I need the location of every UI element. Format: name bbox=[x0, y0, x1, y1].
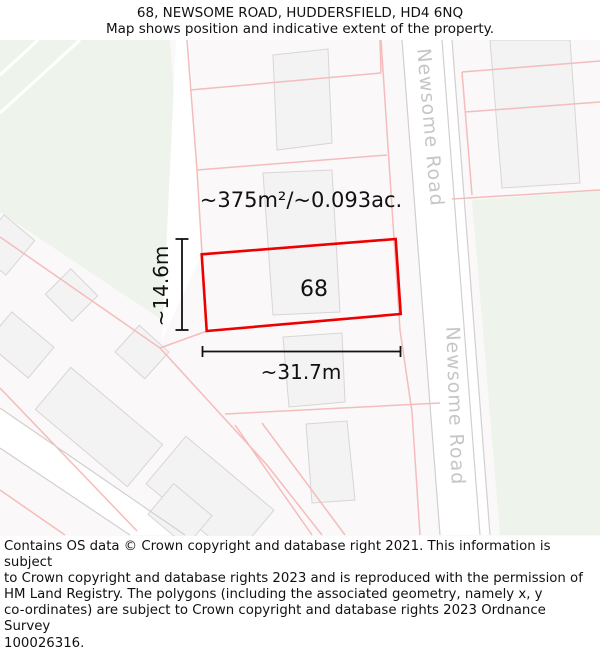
page-title: 68, NEWSOME ROAD, HUDDERSFIELD, HD4 6NQ bbox=[0, 0, 600, 21]
area-label: ~375m²/~0.093ac. bbox=[200, 188, 402, 212]
building bbox=[306, 421, 355, 503]
plot-number-label: 68 bbox=[300, 277, 328, 302]
height-dimension-label: ~14.6m bbox=[149, 246, 173, 327]
copyright-notice: Contains OS data © Crown copyright and d… bbox=[0, 536, 600, 652]
page-subtitle: Map shows position and indicative extent… bbox=[0, 21, 600, 37]
ordnance-survey-map: Newsome Road Newsome Road ~375m²/~0.093a… bbox=[0, 40, 600, 536]
map-header: 68, NEWSOME ROAD, HUDDERSFIELD, HD4 6NQ … bbox=[0, 0, 600, 40]
width-dimension-label: ~31.7m bbox=[261, 360, 342, 384]
building bbox=[490, 40, 580, 188]
property-map-page: { "header": { "title": "68, NEWSOME ROAD… bbox=[0, 0, 600, 625]
building bbox=[273, 49, 332, 150]
map-footer: Contains OS data © Crown copyright and d… bbox=[0, 536, 600, 625]
map-canvas: Newsome Road Newsome Road ~375m²/~0.093a… bbox=[0, 40, 600, 536]
